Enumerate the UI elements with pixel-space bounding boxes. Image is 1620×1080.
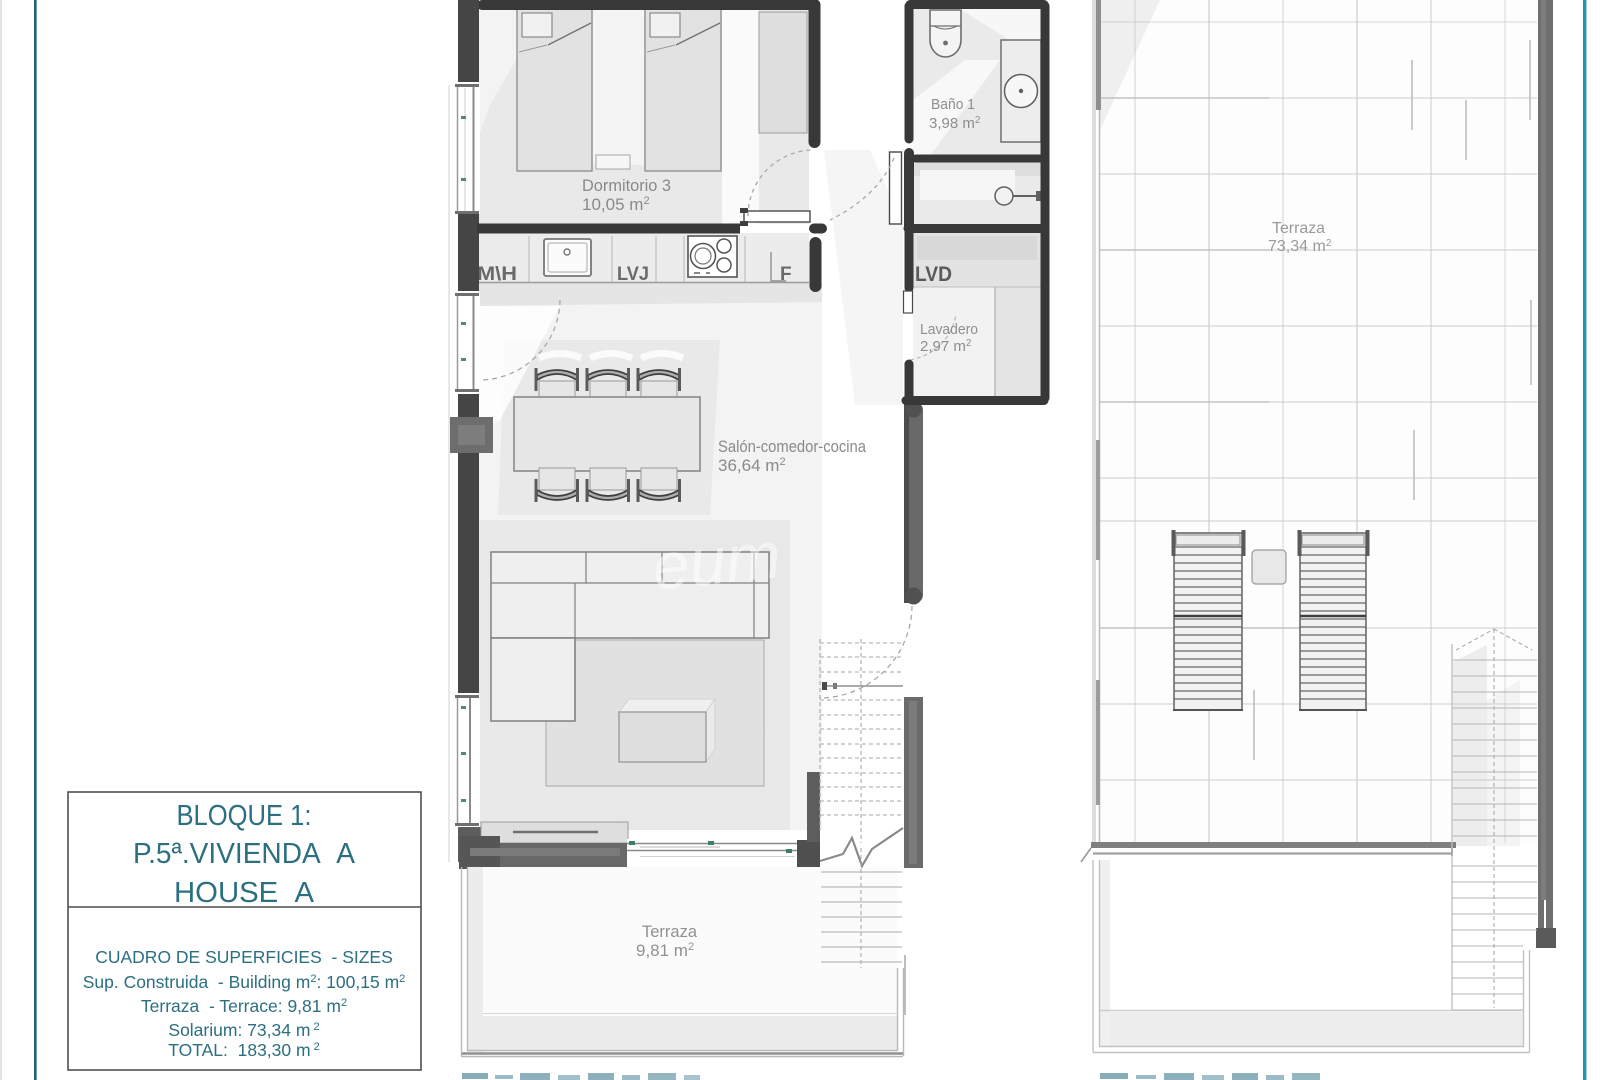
svg-text:2,97 m2: 2,97 m2 bbox=[920, 338, 972, 355]
svg-text:HOUSE A: HOUSE A bbox=[174, 877, 315, 909]
svg-text:Dormitorio 3: Dormitorio 3 bbox=[582, 176, 671, 195]
svg-text:M\H: M\H bbox=[477, 264, 517, 285]
svg-text:Lavadero: Lavadero bbox=[920, 321, 978, 338]
svg-text:CUADRO DE SUPERFICIES - SIZES: CUADRO DE SUPERFICIES - SIZES bbox=[95, 947, 393, 967]
svg-text:LVJ: LVJ bbox=[617, 264, 649, 285]
svg-text:P.5ª.VIVIENDA A: P.5ª.VIVIENDA A bbox=[133, 838, 356, 870]
svg-text:Salón-comedor-cocina: Salón-comedor-cocina bbox=[718, 437, 866, 456]
svg-text:Terraza - Terrace: 9,81 m2: Terraza - Terrace: 9,81 m2 bbox=[141, 996, 347, 1016]
svg-text:Baño 1: Baño 1 bbox=[931, 96, 975, 113]
svg-text:9,81 m2: 9,81 m2 bbox=[636, 941, 694, 960]
svg-text:F: F bbox=[780, 264, 792, 285]
svg-text:Terraza: Terraza bbox=[1272, 220, 1325, 237]
svg-text:73,34 m2: 73,34 m2 bbox=[1268, 238, 1332, 255]
svg-text:TOTAL: 183,30 m 2: TOTAL: 183,30 m 2 bbox=[168, 1040, 320, 1060]
svg-text:Solarium: 73,34 m 2: Solarium: 73,34 m 2 bbox=[168, 1020, 319, 1040]
svg-text:36,64 m2: 36,64 m2 bbox=[718, 456, 786, 475]
svg-text:Sup. Construida - Building m2: Sup. Construida - Building m2: 100,15 m2 bbox=[83, 972, 406, 992]
svg-text:e​u​m: e​u​m bbox=[649, 517, 784, 604]
svg-text:Terraza: Terraza bbox=[642, 922, 698, 941]
svg-text:LVD: LVD bbox=[915, 263, 952, 286]
svg-text:BLOQUE 1:: BLOQUE 1: bbox=[177, 800, 312, 832]
svg-text:10,05 m2: 10,05 m2 bbox=[582, 195, 650, 214]
svg-text:3,98 m2: 3,98 m2 bbox=[929, 115, 981, 132]
